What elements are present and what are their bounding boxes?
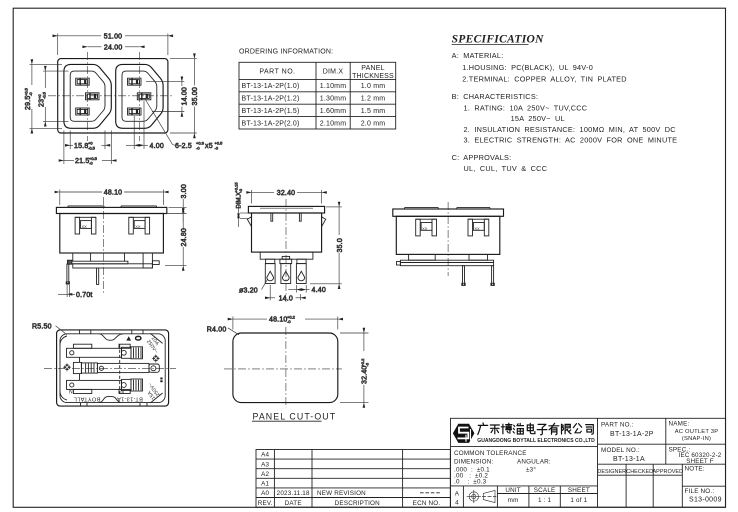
svg-text:R4.00: R4.00 — [207, 326, 227, 333]
svg-text:AC OUTLET 3P: AC OUTLET 3P — [675, 429, 719, 435]
svg-text:SPECIFICATION: SPECIFICATION — [452, 34, 544, 46]
svg-text:1.5 mm: 1.5 mm — [361, 108, 386, 115]
svg-text:32.40: 32.40 — [277, 190, 296, 197]
svg-text:XX: XX — [474, 226, 480, 231]
svg-text:S13-0009: S13-0009 — [689, 496, 722, 503]
svg-text:1.0 mm: 1.0 mm — [361, 83, 386, 90]
svg-text:A2: A2 — [261, 471, 269, 478]
svg-text:BT-13-1A: BT-13-1A — [117, 395, 143, 401]
svg-text:PANEL CUT-OUT: PANEL CUT-OUT — [253, 411, 337, 421]
svg-text:BT-13-1A-2P(2.0): BT-13-1A-2P(2.0) — [242, 120, 300, 127]
svg-text:DIMENSION:: DIMENSION: — [454, 458, 493, 465]
svg-text:XX: XX — [135, 224, 141, 229]
svg-text:PART NO.:: PART NO.: — [601, 421, 634, 428]
svg-text:XX: XX — [82, 224, 88, 229]
svg-text:C: APPROVALS:: C: APPROVALS: — [452, 153, 512, 162]
svg-text:XX: XX — [422, 226, 428, 231]
svg-text:3.00: 3.00 — [181, 184, 188, 198]
svg-text:14.0: 14.0 — [279, 295, 293, 302]
svg-text:BT-13-1A-2P(1.5): BT-13-1A-2P(1.5) — [242, 108, 300, 115]
svg-text:4.00: 4.00 — [150, 143, 164, 150]
svg-text:NOTE:: NOTE: — [685, 466, 705, 473]
svg-text:35.0: 35.0 — [337, 238, 344, 252]
svg-text:21.5: 21.5 — [75, 158, 89, 165]
svg-text:29.5: 29.5 — [25, 96, 32, 110]
svg-text:BT-13-1A-2P(1.2): BT-13-1A-2P(1.2) — [242, 96, 300, 103]
svg-text:DATE: DATE — [285, 500, 302, 507]
svg-text:1.60mm: 1.60mm — [320, 108, 347, 115]
svg-text:SHEET: SHEET — [568, 487, 590, 494]
svg-text:BOYTALL: BOYTALL — [73, 395, 100, 401]
svg-text:2.0 mm: 2.0 mm — [361, 120, 386, 127]
svg-text:A0: A0 — [261, 490, 269, 497]
svg-text:48.10: 48.10 — [269, 317, 288, 324]
svg-text:BT-13-1A: BT-13-1A — [613, 456, 645, 463]
svg-text:B: CHARACTERISTICS:: B: CHARACTERISTICS: — [452, 92, 539, 101]
svg-text:THICKNESS: THICKNESS — [352, 73, 394, 80]
svg-text:UNIT: UNIT — [505, 487, 521, 494]
svg-text:1. RATING: 10A 250V~ TUV,C: 1. RATING: 10A 250V~ TUV,CCC — [464, 104, 588, 113]
svg-text:A4: A4 — [261, 452, 269, 459]
svg-text:.0 : ±0.3: .0 : ±0.3 — [454, 478, 487, 485]
svg-text:PANEL: PANEL — [361, 65, 384, 72]
svg-text:1 : 1: 1 : 1 — [538, 497, 552, 504]
svg-text:0.70t: 0.70t — [76, 292, 93, 299]
svg-text:4.40: 4.40 — [312, 287, 326, 294]
svg-text:A: MATERIAL:: A: MATERIAL: — [452, 51, 504, 60]
svg-text:x5: x5 — [205, 143, 213, 150]
svg-text:1.30mm: 1.30mm — [320, 96, 347, 103]
svg-text:6-2.5: 6-2.5 — [175, 143, 192, 150]
svg-text:REV.: REV. — [258, 500, 273, 507]
svg-text:N: N — [69, 388, 73, 394]
svg-text:24.80: 24.80 — [181, 228, 188, 247]
svg-text:SCALE: SCALE — [534, 487, 556, 494]
svg-text:NEW REVISION: NEW REVISION — [317, 490, 366, 497]
svg-text:3. ELECTRIC STRENGTH: AC 2: 3. ELECTRIC STRENGTH: AC 2000V FOR ONE M… — [464, 136, 678, 145]
svg-text:DESCRIPTION: DESCRIPTION — [335, 500, 380, 507]
svg-text:1.2 mm: 1.2 mm — [361, 96, 386, 103]
svg-text:2023.11.18: 2023.11.18 — [277, 490, 310, 497]
svg-text:15.8: 15.8 — [74, 143, 88, 150]
svg-text:MODEL NO.:: MODEL NO.: — [601, 447, 640, 454]
svg-text:DIM.X: DIM.X — [237, 192, 243, 209]
svg-text:A3: A3 — [261, 461, 269, 468]
svg-text:R5.50: R5.50 — [32, 324, 52, 331]
svg-text:GUANGDONG BOYTALL ELECTRONICS: GUANGDONG BOYTALL ELECTRONICS CO.,LTD — [477, 438, 595, 444]
svg-text:(SNAP-IN): (SNAP-IN) — [682, 436, 711, 442]
svg-text:2. INSULATION RESISTANCE: 1: 2. INSULATION RESISTANCE: 100MΩ MIN, AT … — [464, 125, 676, 134]
svg-text:-0.5: -0.5 — [88, 145, 96, 150]
svg-text:51.00: 51.00 — [104, 33, 123, 40]
svg-text:COMMON TOLERANCE: COMMON TOLERANCE — [454, 450, 527, 457]
svg-text:A1: A1 — [261, 481, 269, 488]
svg-text:N: N — [120, 388, 124, 394]
svg-text:2.TERMINAL: COPPER ALLOY, T: 2.TERMINAL: COPPER ALLOY, TIN PLATED — [462, 75, 627, 84]
svg-text:UL, CUL, TUV & CCC: UL, CUL, TUV & CCC — [464, 164, 548, 173]
svg-text:35.00: 35.00 — [192, 87, 199, 106]
svg-text:ANGULAR:: ANGULAR: — [517, 458, 551, 465]
svg-text:SHEET F: SHEET F — [686, 458, 713, 465]
svg-text:1.10mm: 1.10mm — [320, 83, 347, 90]
svg-text:mm: mm — [508, 497, 519, 504]
svg-text:48.10: 48.10 — [104, 190, 123, 197]
svg-text:CHECKED: CHECKED — [626, 469, 653, 475]
svg-text:BT-13-1A-2P: BT-13-1A-2P — [610, 431, 654, 438]
svg-text:ORDERING INFORMATION:: ORDERING INFORMATION: — [239, 48, 333, 55]
svg-text:PART NO.: PART NO. — [259, 69, 295, 76]
svg-text:APPROVED: APPROVED — [653, 469, 684, 475]
svg-text:-0.5: -0.5 — [41, 91, 46, 99]
svg-text:1.HOUSING: PC(BLACK), UL 94: 1.HOUSING: PC(BLACK), UL 94V-0 — [462, 63, 593, 72]
svg-text:32.40: 32.40 — [362, 365, 369, 384]
svg-text:23: 23 — [39, 99, 46, 107]
svg-text:24.00: 24.00 — [104, 44, 123, 51]
svg-text:BT-13-1A-2P(1.0): BT-13-1A-2P(1.0) — [242, 83, 300, 90]
svg-text:ECN NO.: ECN NO. — [413, 500, 441, 507]
svg-text:DIM.X: DIM.X — [323, 69, 344, 76]
svg-text:NAME:: NAME: — [669, 421, 690, 428]
svg-text:1 of 1: 1 of 1 — [570, 497, 587, 504]
svg-text:FILE NO.:: FILE NO.: — [685, 488, 715, 495]
svg-text:4: 4 — [455, 499, 459, 506]
svg-text:2.10mm: 2.10mm — [320, 120, 347, 127]
svg-text:DESIGNER: DESIGNER — [597, 469, 626, 475]
svg-text:ø3.20: ø3.20 — [239, 287, 258, 294]
svg-text:15A 250V~ UL: 15A 250V~ UL — [511, 114, 565, 123]
svg-text:±3°: ±3° — [526, 465, 536, 473]
svg-text:14.00: 14.00 — [181, 87, 188, 106]
